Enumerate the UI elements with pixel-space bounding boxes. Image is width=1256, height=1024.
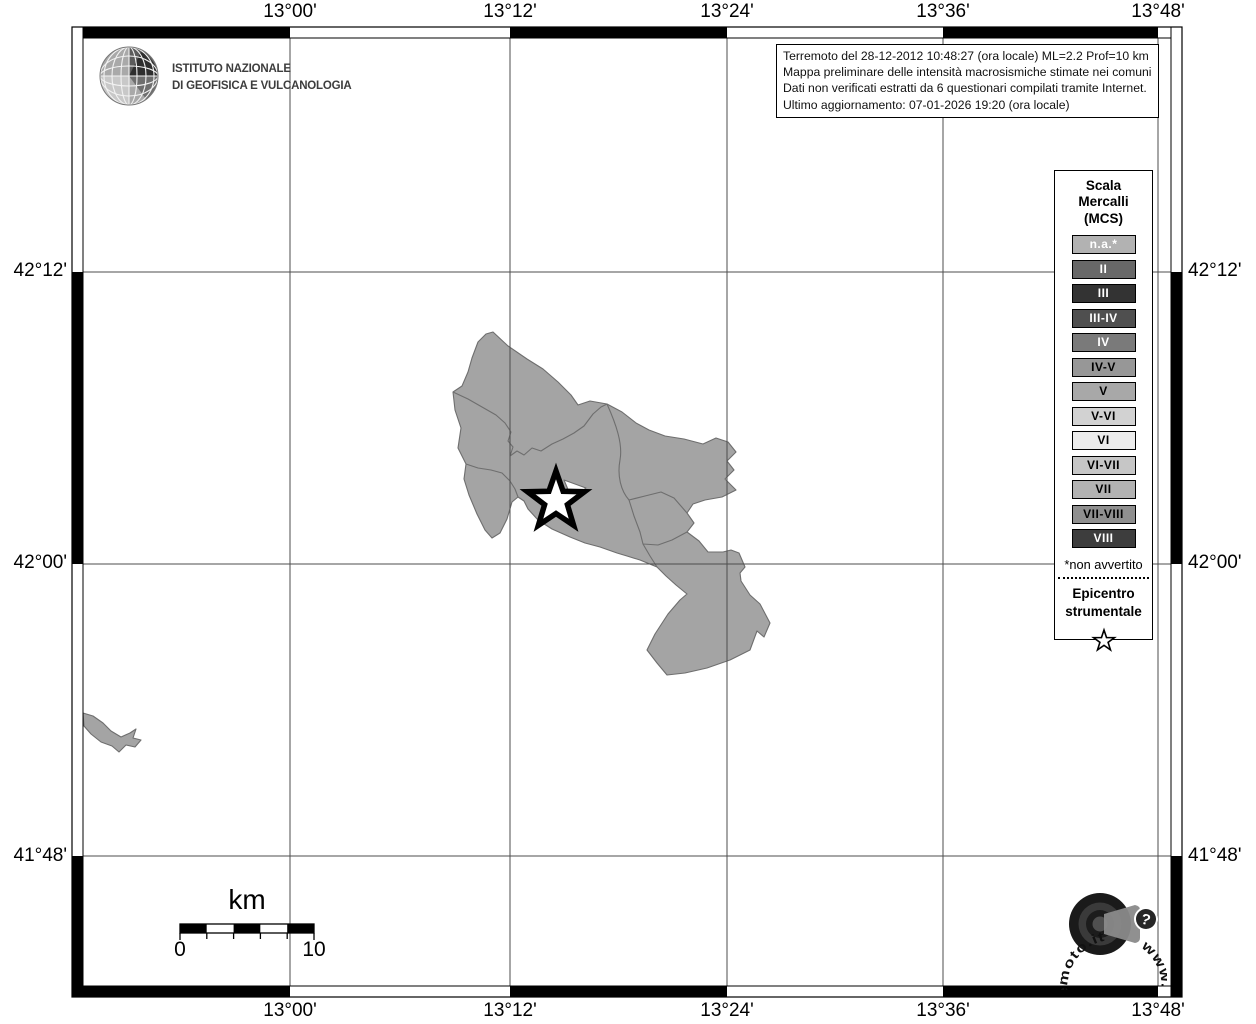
event-info-line: Ultimo aggiornamento: 07-01-2026 19:20 (… bbox=[783, 97, 1152, 113]
legend-item: IV bbox=[1072, 333, 1136, 352]
hsit-logo: www.haisentitoilterremoto.it ? bbox=[1035, 858, 1167, 990]
lat-label-right: 41°48' bbox=[1188, 845, 1256, 867]
lat-label-left: 42°00' bbox=[0, 552, 67, 574]
ingv-name: ISTITUTO NAZIONALE DI GEOFISICA E VULCAN… bbox=[172, 61, 351, 96]
legend-item: VIII bbox=[1072, 529, 1136, 548]
legend-item: III bbox=[1072, 284, 1136, 303]
municipality-cluster bbox=[453, 332, 770, 675]
legend-title: Scala Mercalli (MCS) bbox=[1055, 178, 1152, 227]
lon-label-top: 13°24' bbox=[672, 1, 782, 23]
legend-item: II bbox=[1072, 260, 1136, 279]
legend-item: IV-V bbox=[1072, 358, 1136, 377]
legend-footnote: *non avvertito bbox=[1055, 557, 1152, 572]
legend-item: VI-VII bbox=[1072, 456, 1136, 475]
lon-label-top: 13°48' bbox=[1103, 1, 1213, 23]
legend-item: V-VI bbox=[1072, 407, 1136, 426]
legend-separator bbox=[1058, 577, 1149, 579]
lon-label-top: 13°12' bbox=[455, 1, 565, 23]
lon-label-top: 13°36' bbox=[888, 1, 998, 23]
lat-label-left: 41°48' bbox=[0, 845, 67, 867]
mcs-legend: Scala Mercalli (MCS) n.a.* II III III-IV… bbox=[1054, 170, 1153, 640]
legend-item: VII-VIII bbox=[1072, 505, 1136, 524]
legend-epicenter-star-icon bbox=[1090, 626, 1118, 654]
event-info-line: Mappa preliminare delle intensità macros… bbox=[783, 64, 1152, 80]
legend-item: III-IV bbox=[1072, 309, 1136, 328]
lat-label-right: 42°12' bbox=[1188, 260, 1256, 282]
macroseismic-map-page: { "header": { "ingv_name": "ISTITUTO NAZ… bbox=[0, 0, 1256, 1024]
legend-epicenter-label: Epicentro strumentale bbox=[1055, 585, 1152, 620]
lat-label-right: 42°00' bbox=[1188, 552, 1256, 574]
lon-label-bottom: 13°48' bbox=[1103, 1000, 1213, 1022]
scale-end-label: 10 bbox=[299, 938, 329, 962]
legend-item: V bbox=[1072, 382, 1136, 401]
municipality-polygons bbox=[83, 332, 770, 752]
scale-bar-graphic bbox=[179, 923, 316, 943]
lon-label-bottom: 13°24' bbox=[672, 1000, 782, 1022]
lon-label-bottom: 13°36' bbox=[888, 1000, 998, 1022]
event-info-box: Terremoto del 28-12-2012 10:48:27 (ora l… bbox=[776, 44, 1159, 118]
lat-label-left: 42°12' bbox=[0, 260, 67, 282]
legend-item: n.a.* bbox=[1072, 235, 1136, 254]
event-info-line: Terremoto del 28-12-2012 10:48:27 (ora l… bbox=[783, 48, 1152, 64]
ingv-globe-icon bbox=[96, 44, 166, 110]
lon-label-top: 13°00' bbox=[235, 1, 345, 23]
legend-item: VI bbox=[1072, 431, 1136, 450]
lon-label-bottom: 13°12' bbox=[455, 1000, 565, 1022]
legend-item: VII bbox=[1072, 480, 1136, 499]
scale-start-label: 0 bbox=[168, 938, 192, 962]
event-info-line: Dati non verificati estratti da 6 questi… bbox=[783, 80, 1152, 96]
scale-unit-label: km bbox=[180, 884, 314, 916]
municipality-small-west bbox=[83, 713, 141, 752]
lon-label-bottom: 13°00' bbox=[235, 1000, 345, 1022]
